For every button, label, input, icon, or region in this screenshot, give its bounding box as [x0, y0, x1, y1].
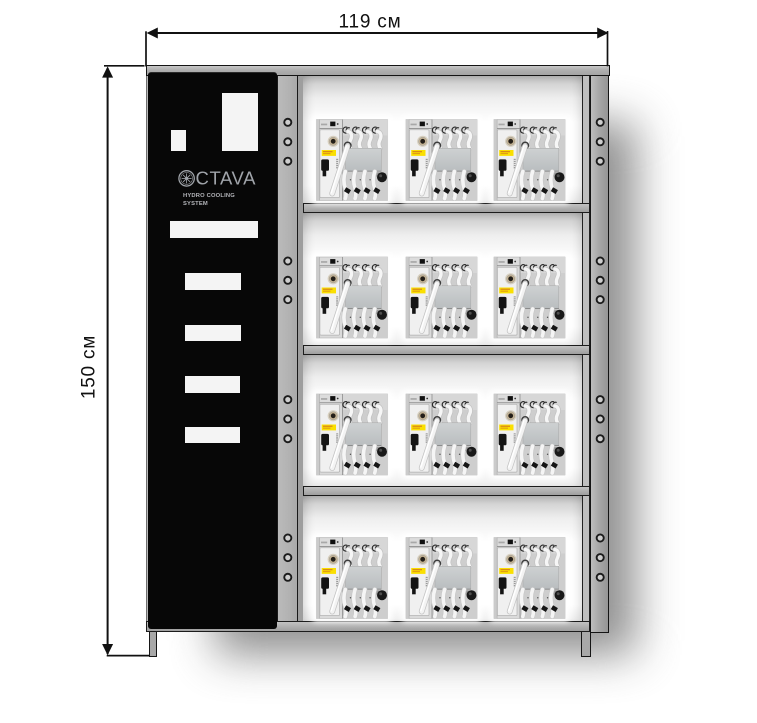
svg-text:150 см: 150 см	[79, 335, 100, 399]
svg-text:119 см: 119 см	[339, 12, 402, 33]
